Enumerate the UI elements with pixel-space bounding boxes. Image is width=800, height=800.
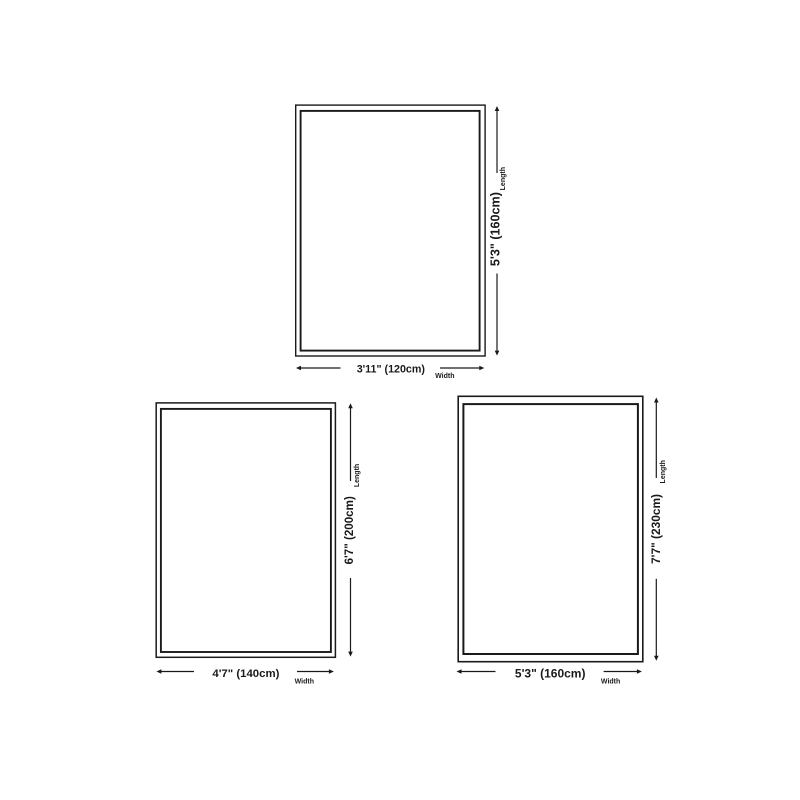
svg-text:Length: Length (660, 460, 667, 483)
svg-text:Width: Width (601, 678, 620, 685)
svg-text:Length: Length (500, 167, 507, 190)
svg-text:Width: Width (295, 678, 314, 685)
svg-text:5'3" (160cm): 5'3" (160cm) (515, 666, 586, 680)
svg-text:5'3" (160cm): 5'3" (160cm) (489, 192, 503, 266)
svg-text:4'7" (140cm): 4'7" (140cm) (212, 668, 279, 680)
svg-text:6'7" (200cm): 6'7" (200cm) (343, 496, 356, 564)
svg-text:7'7" (230cm): 7'7" (230cm) (649, 494, 663, 564)
svg-text:3'11" (120cm): 3'11" (120cm) (357, 363, 426, 375)
svg-text:Length: Length (354, 464, 361, 487)
svg-text:Width: Width (435, 373, 454, 380)
